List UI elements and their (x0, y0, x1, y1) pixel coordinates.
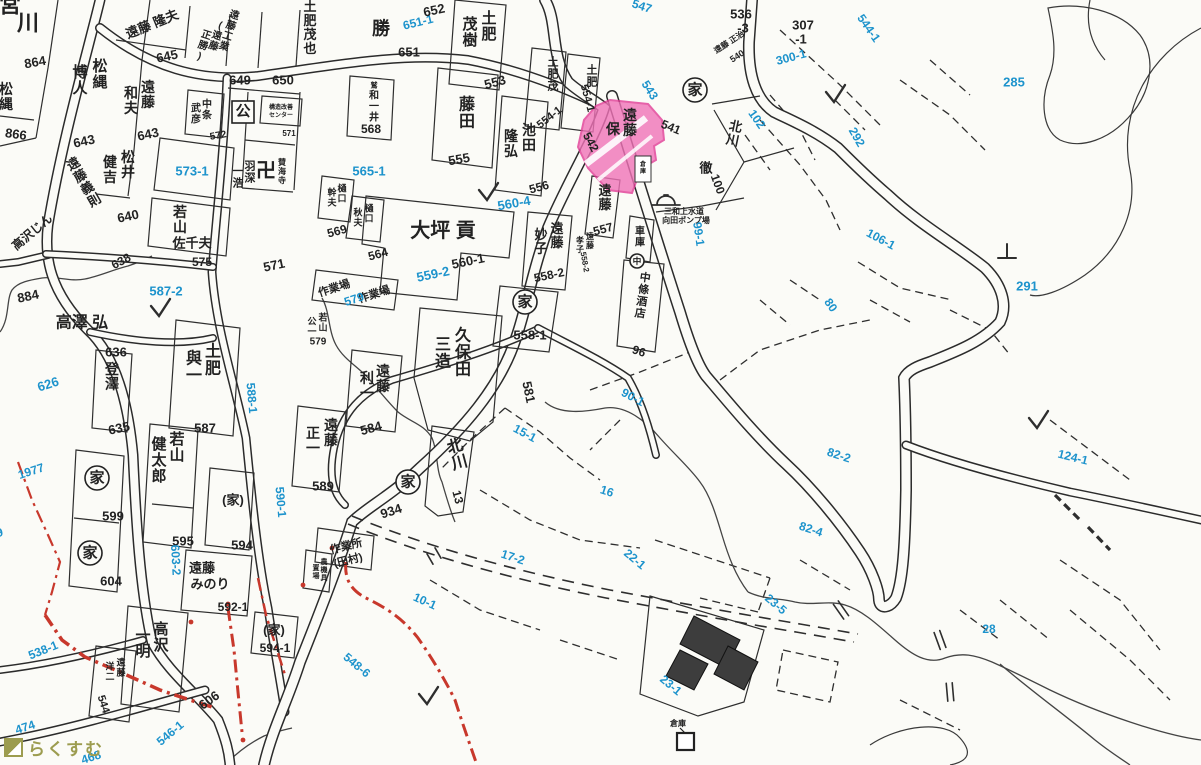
map-label: 643 (72, 131, 96, 150)
bridge-icon (946, 683, 954, 701)
map-label: 555 (447, 150, 471, 169)
svg-text:中: 中 (633, 255, 642, 266)
map-label: 佐千夫 (171, 236, 212, 251)
map-label: 倉庫 (639, 160, 647, 175)
map-label: 車庫 (635, 225, 645, 249)
map-label: 546-1 (154, 718, 187, 749)
survey-check-icon (1029, 411, 1048, 428)
map-label: 564 (367, 245, 390, 264)
map-label: 584 (359, 418, 385, 438)
map-label: 100 (708, 172, 728, 196)
家-symbol: 家 (513, 290, 537, 314)
map-label: 大坪 貢 (410, 219, 476, 242)
map-label: 292 (846, 125, 868, 150)
map-label: 106-1 (864, 226, 898, 253)
map-label: 農機具 (320, 557, 329, 582)
map-label: 650 (272, 73, 294, 88)
map-label: センター (269, 111, 293, 119)
map-label: 松縄 (92, 57, 107, 91)
map-label: 遠藤 (116, 657, 126, 678)
map-label: 82-4 (797, 519, 824, 540)
map-label: 公一 (307, 317, 316, 337)
map-label: 359 (0, 525, 5, 544)
map-label: 652 (422, 0, 446, 19)
map-label: 羽深 (245, 159, 256, 184)
map-label: 560-4 (496, 193, 532, 214)
pole-tick-icon (427, 554, 433, 564)
中-symbol: 中 (630, 254, 644, 268)
map-label: 正一 (306, 425, 320, 456)
map-label: 遠藤工業 (217, 7, 243, 54)
家-symbol: 家 (396, 470, 420, 494)
map-label: 638 (109, 250, 134, 272)
map-label: 543 (639, 78, 662, 103)
map-label: 遠藤 (623, 107, 638, 138)
map-label: 82-2 (825, 445, 852, 466)
map-label: 15-1 (511, 421, 539, 445)
map-label: 307 (792, 18, 814, 33)
map-label: 三造 (435, 337, 452, 371)
map-label: 保 (605, 121, 621, 137)
map-label: 594 (231, 538, 253, 553)
map-label: 和夫 (124, 85, 139, 116)
watermark: らくすむ (4, 735, 104, 760)
公-symbol: 公 (232, 101, 254, 123)
map-label: 28 (982, 622, 996, 636)
svg-text:公: 公 (236, 103, 251, 120)
survey-check-icon (826, 85, 845, 102)
map-label: (家) (222, 493, 244, 508)
map-label: 866 (4, 125, 28, 143)
map-label: 569 (326, 222, 349, 241)
map-label: 22-1 (621, 546, 649, 572)
map-label: 幹夫 (327, 187, 337, 208)
map-label: 三和上水道 (664, 206, 704, 216)
rakusumu-logo-icon (4, 738, 23, 757)
map-label: 96 (630, 342, 647, 360)
map-label: 倉庫 (669, 718, 686, 728)
monument-icon (998, 244, 1016, 258)
map-label: 300-1 (774, 46, 808, 68)
map-label: 武彦 (191, 102, 201, 126)
map-label: 579 (310, 337, 327, 348)
map-label: 登澤 (104, 361, 120, 392)
map-label: 645 (155, 46, 179, 65)
map-label: (家) (263, 623, 285, 638)
map-label: 17-2 (499, 547, 526, 568)
svg-text:家: 家 (517, 293, 532, 311)
map-label: 592-1 (218, 600, 249, 614)
map-label: 573-1 (175, 164, 208, 179)
map-label: 洋二 (105, 661, 114, 682)
map-label: 土肥茂也 (303, 0, 316, 56)
map-label: 樋口 (337, 183, 346, 204)
map-label: 571 (282, 129, 296, 138)
field-boundary-dashes (430, 30, 1170, 730)
svg-text:家: 家 (687, 81, 702, 99)
map-label: 遠藤 (189, 561, 216, 576)
map-label: 643 (136, 124, 160, 143)
map-label: 松井 (121, 149, 135, 180)
map-label: 603-2 (168, 544, 184, 576)
map-label: 高沢 (153, 620, 169, 654)
map-label: 中條酒店 (634, 270, 653, 321)
map-label: 若山 (317, 312, 327, 333)
map-label: 徹 (698, 161, 713, 176)
map-label: 588-1 (243, 382, 260, 414)
map-label: 10-1 (411, 590, 439, 613)
map-label: 291 (1016, 279, 1038, 294)
map-label: 北川 (724, 118, 744, 149)
map-label: 884 (16, 286, 41, 305)
map-label: 558-1 (513, 328, 546, 343)
map-label: 636 (105, 345, 127, 360)
map-label: 博人 (72, 63, 88, 97)
track-corridor (348, 516, 858, 642)
svg-text:家: 家 (89, 469, 104, 487)
map-label: 571 (262, 255, 286, 274)
map-label: 置場 (313, 563, 320, 580)
map-label: 池田 (522, 122, 536, 153)
map-label: 樋口 (364, 203, 373, 224)
map-label: 遠藤 (324, 417, 339, 448)
map-label: 若山 (168, 430, 184, 464)
map-label: 23-5 (762, 591, 790, 617)
map-label: 賛海寺 (278, 157, 287, 185)
map-label: 藤田 (459, 95, 476, 131)
map-label: 遠藤 隆夫 (123, 6, 181, 41)
map-label: 557 (592, 220, 615, 239)
map-label: 16 (598, 482, 615, 500)
map-label: 松縄 (0, 81, 13, 112)
map-label: 川 (16, 11, 39, 36)
map-canvas: 家家家家家中公 宮川864866松縄松縄博人遠藤和夫643643松井健吉640遠… (0, 0, 1201, 765)
survey-check-icon (419, 687, 438, 704)
map-label: 626 (35, 374, 60, 395)
map-label: 864 (23, 53, 48, 72)
pole-tick-icon (435, 548, 441, 558)
map-label: 中条 (201, 98, 213, 122)
家-symbol: 家 (85, 466, 109, 490)
cadastral-map: 家家家家家中公 宮川864866松縄松縄博人遠藤和夫643643松井健吉640遠… (0, 0, 1201, 765)
家-symbol: 家 (683, 78, 707, 102)
map-label: 土肥 (205, 342, 221, 378)
map-label: みのり (190, 577, 229, 592)
map-label: -1 (795, 32, 807, 47)
家-symbol: 家 (78, 541, 102, 565)
map-label: 妙子 (534, 227, 547, 256)
map-label: 589 (312, 479, 334, 494)
map-label: 651 (398, 45, 420, 60)
map-label: 544-1 (854, 12, 883, 45)
map-label: 559-2 (415, 263, 451, 285)
map-label: 560-1 (450, 250, 486, 272)
map-label: 一明 (135, 627, 150, 660)
map-label: 遠藤義則 (64, 153, 105, 209)
map-label: 553 (483, 72, 508, 92)
map-label: 99-1 (690, 221, 707, 247)
map-label: 558-2 (578, 251, 591, 273)
map-label: 卍 (256, 160, 276, 182)
map-label: 遠藤 (141, 79, 156, 110)
map-label: 1977 (16, 460, 46, 482)
map-label: 健吉 (103, 154, 117, 185)
map-label: 土肥茂 (548, 54, 559, 92)
bridge-icon (934, 631, 946, 650)
map-label: 一浩 (233, 165, 244, 189)
map-label: 遠藤 (585, 231, 595, 250)
watermark-text: らくすむ (28, 735, 104, 760)
streams (0, 256, 1201, 765)
map-label: 547 (630, 0, 654, 16)
map-label: 80 (821, 296, 840, 315)
survey-check-icon (479, 183, 498, 200)
map-label: 565-1 (352, 164, 385, 179)
svg-text:家: 家 (82, 544, 97, 562)
map-label: 孝子 (575, 235, 584, 254)
map-label: 勝 (372, 17, 391, 38)
map-label: 548-6 (341, 650, 374, 681)
map-label: 構造改善 (269, 103, 293, 111)
map-label: 599 (102, 509, 124, 524)
map-label: 124-1 (1056, 447, 1089, 468)
map-label: 581 (519, 380, 538, 404)
map-label: 587 (194, 421, 216, 436)
map-label: 茂樹 (462, 15, 477, 49)
survey-check-icon (151, 299, 170, 316)
pump-station-icon (652, 195, 680, 205)
map-label: 高澤 弘 (56, 313, 108, 332)
map-label: 若山 (172, 204, 187, 235)
map-label: 與一 (186, 349, 202, 385)
map-label: 590-1 (272, 486, 289, 518)
map-label: 土肥 (481, 9, 496, 43)
map-label: 575 (192, 255, 212, 269)
map-label: 604 (100, 574, 122, 589)
map-label: 640 (116, 206, 140, 225)
contour-lines (870, 0, 1201, 765)
map-label: 鷲 (371, 80, 378, 89)
map-label: 隆弘 (504, 128, 519, 159)
map-label: 遠藤 (376, 363, 391, 394)
map-label: 594-1 (260, 641, 291, 655)
map-labels: 宮川864866松縄松縄博人遠藤和夫643643松井健吉640遠藤 隆夫645遠… (0, 0, 1090, 765)
parcel-lines (0, 0, 794, 722)
map-label: 536 (730, 7, 752, 22)
map-label: 利一 (360, 370, 374, 401)
map-label: 秋夫 (352, 207, 363, 228)
map-label: 568 (361, 122, 381, 136)
map-label: 587-2 (149, 284, 182, 299)
map-label: 久保田 (454, 326, 472, 379)
map-label: 健太郎 (151, 435, 167, 485)
map-label: 遠藤 (550, 221, 564, 250)
map-label: 北川 (444, 436, 469, 474)
map-label: 649 (229, 73, 251, 88)
map-label: 和一井 (368, 89, 379, 124)
map-label: 遠藤 (598, 183, 612, 212)
svg-text:家: 家 (400, 473, 415, 491)
map-label: 285 (1003, 75, 1025, 90)
map-label: 556 (528, 178, 551, 197)
